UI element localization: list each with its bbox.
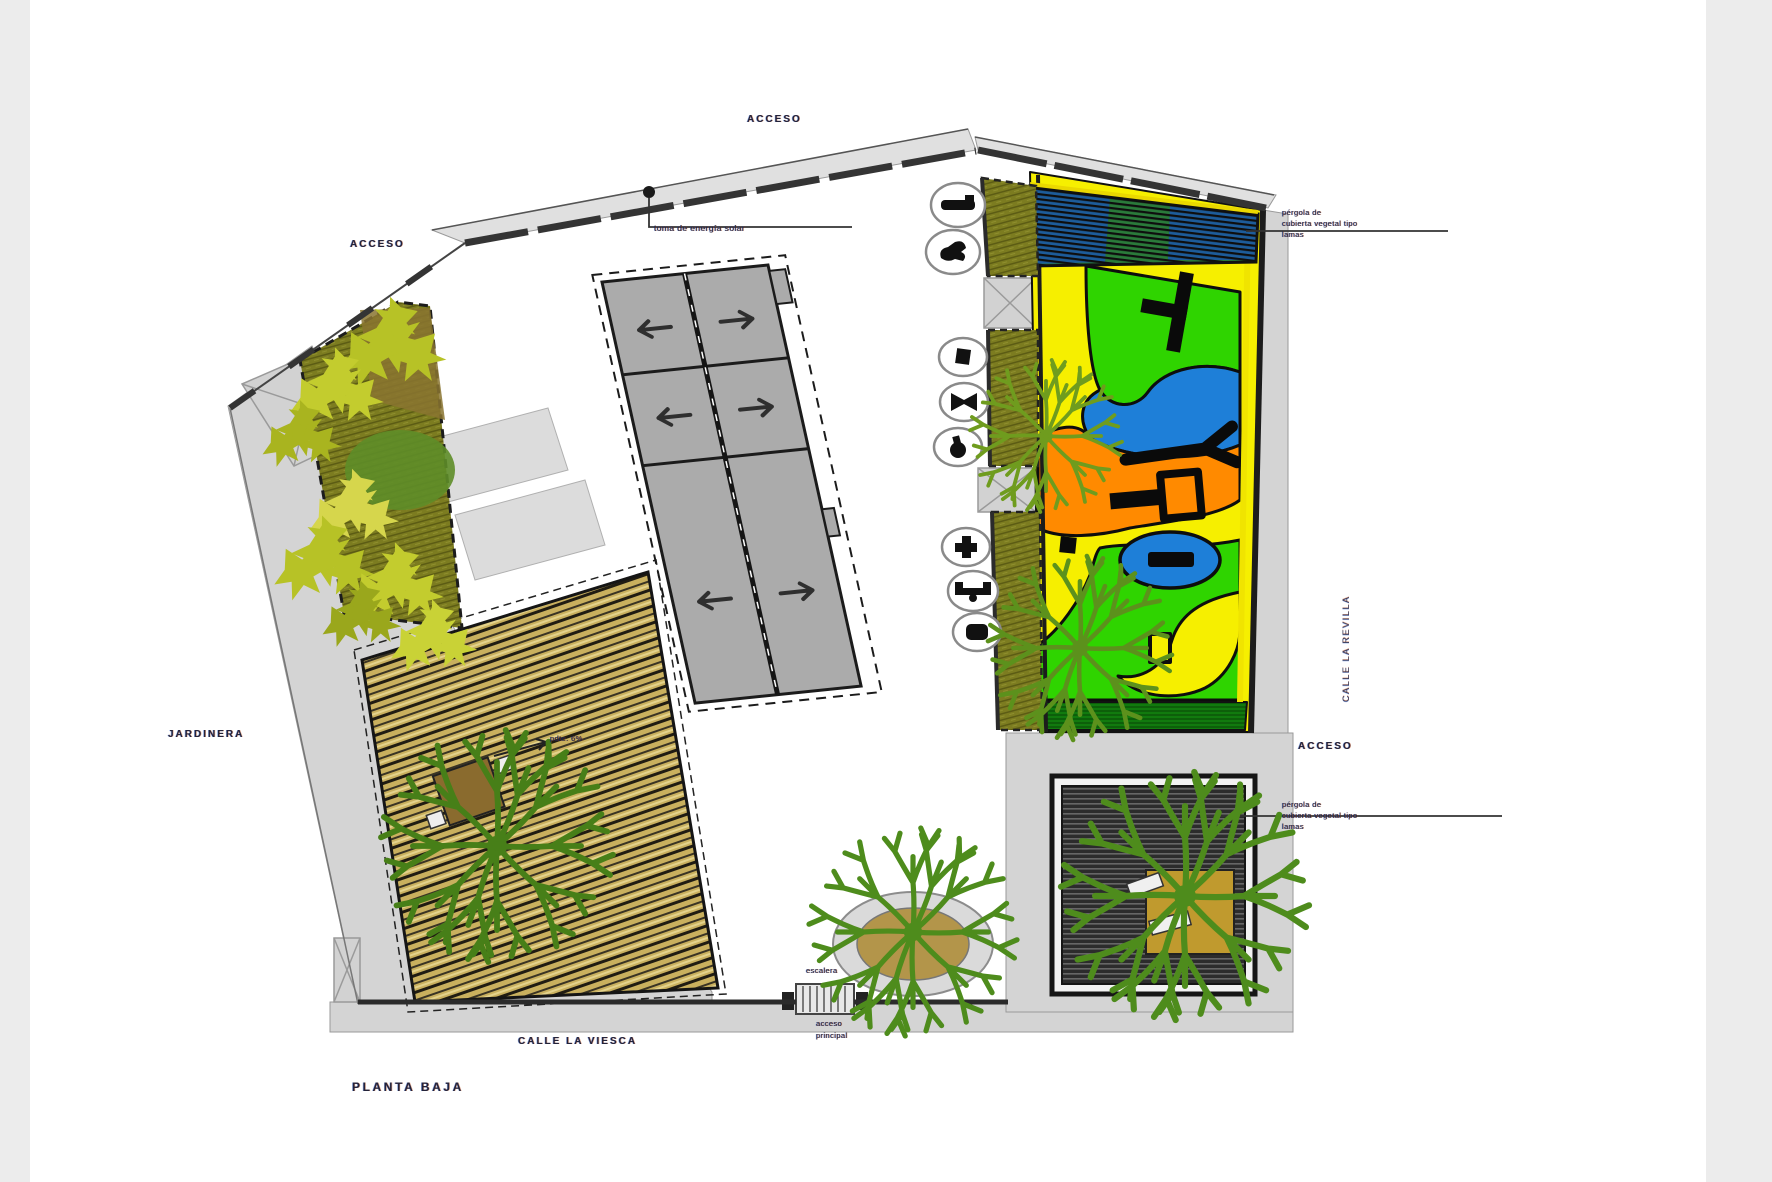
plan-title: planta baja bbox=[352, 1080, 464, 1094]
label-pergola-note-top: pérgola de cubierta vegetal tipo lamas bbox=[1282, 207, 1358, 240]
animal-spring-icon bbox=[926, 230, 980, 274]
label-main-access: acceso principal bbox=[816, 1018, 848, 1042]
label-planter: jardinera bbox=[168, 729, 244, 740]
cross-toy-icon bbox=[942, 528, 990, 566]
label-street-bottom: calle la viesca bbox=[518, 1036, 637, 1047]
balance-bar-icon bbox=[948, 571, 998, 611]
solar-point-icon bbox=[643, 186, 655, 198]
play-block-icon bbox=[953, 613, 1001, 651]
label-access-left: acceso bbox=[350, 239, 405, 250]
seesaw-icon bbox=[940, 383, 988, 421]
label-street-right: calle la revilla bbox=[1341, 595, 1351, 702]
label-access-right: acceso bbox=[1298, 741, 1353, 752]
bench-icon bbox=[931, 183, 985, 227]
label-stairs: escalera bbox=[806, 966, 838, 975]
cube-icon bbox=[939, 338, 987, 376]
label-pergola-note-bottom: pérgola de cubierta vegetal tipo lamas bbox=[1282, 799, 1358, 832]
plan-viewer-canvas: acceso acceso toma de energía solar pérg… bbox=[0, 0, 1772, 1182]
floor-plan-drawing bbox=[0, 0, 1772, 1182]
play-cube bbox=[1059, 536, 1077, 554]
pond-bar-icon bbox=[1148, 552, 1194, 567]
label-access-top: acceso bbox=[747, 114, 802, 125]
label-solar-note: toma de energía solar bbox=[654, 223, 745, 233]
label-slope-note: pdte. 6% bbox=[550, 734, 583, 743]
